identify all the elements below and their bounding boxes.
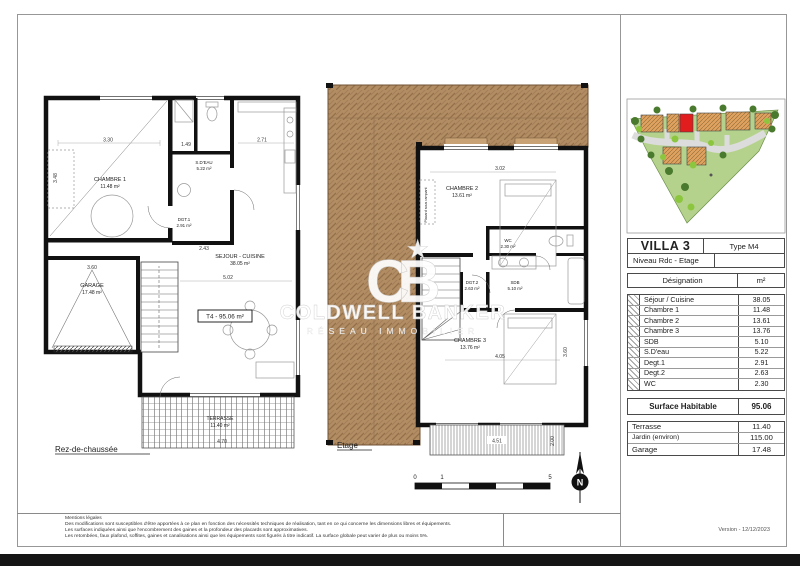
hatch-cell — [628, 306, 640, 316]
legal-notice: Mentions légales Des modifications sont … — [65, 516, 510, 540]
row-label: WC — [640, 380, 738, 388]
row-label: S.D'eau — [640, 348, 738, 356]
legal-line: Des modifications sont susceptibles d'êt… — [65, 522, 510, 528]
row-label: Chambre 3 — [640, 327, 738, 335]
row-value: 11.48 — [738, 306, 784, 316]
table-row: Chambre 2 13.61 — [628, 316, 784, 327]
hatch-cell — [628, 348, 640, 358]
table-row: Garage 17.48 — [628, 444, 784, 455]
table-total-box: Surface Habitable 95.06 — [627, 398, 785, 415]
table-row: Terrasse 11.40 — [628, 422, 784, 433]
table-rows-box: Séjour / Cuisine 38.05 Chambre 1 11.48 C… — [627, 294, 785, 391]
table-row: Séjour / Cuisine 38.05 — [628, 295, 784, 306]
row-value: 5.22 — [738, 348, 784, 358]
table-row: Chambre 1 11.48 — [628, 306, 784, 317]
row-value: 2.63 — [738, 369, 784, 379]
col-unit: m² — [737, 274, 784, 287]
hatch-cell — [628, 337, 640, 347]
row-label: Jardin (environ) — [628, 434, 738, 441]
table-row: Chambre 3 13.76 — [628, 327, 784, 338]
hatch-cell — [628, 295, 640, 305]
table-row: Degt.2 2.63 — [628, 369, 784, 380]
table-row: Jardin (environ) 115.00 — [628, 433, 784, 444]
row-label: Terrasse — [628, 422, 738, 431]
table-row: SDB 5.10 — [628, 337, 784, 348]
footer-divider — [17, 513, 621, 514]
level-label: Niveau Rdc - Etage — [628, 256, 714, 265]
level-empty-cell — [714, 254, 784, 267]
bottom-bar — [0, 554, 800, 566]
row-value: 38.05 — [738, 295, 784, 305]
row-value: 11.40 — [738, 422, 784, 432]
villa-type: Type M4 — [704, 239, 784, 253]
table-header-box: Désignation m² — [627, 273, 785, 288]
row-label: Degt.2 — [640, 369, 738, 377]
row-value: 115.00 — [738, 433, 784, 443]
row-label: Garage — [628, 445, 738, 454]
row-label: SDB — [640, 338, 738, 346]
table-row: WC 2.30 — [628, 379, 784, 390]
total-value: 95.06 — [738, 399, 784, 414]
row-value: 2.30 — [738, 379, 784, 390]
hatch-cell — [628, 379, 640, 390]
hatch-cell — [628, 358, 640, 368]
legal-line: Les retombées, faux plafond, soffites, g… — [65, 534, 510, 540]
villa-title: VILLA 3 — [628, 239, 704, 253]
hatch-cell — [628, 369, 640, 379]
row-label: Séjour / Cuisine — [640, 296, 738, 304]
hatch-cell — [628, 327, 640, 337]
row-label: Degt.1 — [640, 359, 738, 367]
panel-separator — [620, 14, 621, 546]
surface-table: VILLA 3 Type M4 Niveau Rdc - Etage Désig… — [627, 238, 785, 456]
row-label: Chambre 1 — [640, 306, 738, 314]
table-extras-box: Terrasse 11.40 Jardin (environ) 115.00 G… — [627, 421, 785, 456]
col-designation: Désignation — [628, 274, 737, 287]
row-value: 2.91 — [738, 358, 784, 368]
row-value: 13.61 — [738, 316, 784, 326]
table-row: S.D'eau 5.22 — [628, 348, 784, 359]
total-label: Surface Habitable — [628, 399, 738, 414]
row-value: 17.48 — [738, 444, 784, 455]
table-title-box: VILLA 3 Type M4 Niveau Rdc - Etage — [627, 238, 785, 268]
hatch-cell — [628, 316, 640, 326]
version-label: Version - 12/12/2023 — [630, 527, 778, 533]
table-row: Degt.1 2.91 — [628, 358, 784, 369]
row-value: 5.10 — [738, 337, 784, 347]
plan-sheet: CHAMBRE 1 11.48 m² S.D'EAU 5.22 m² DGT.1… — [0, 0, 800, 566]
row-label: Chambre 2 — [640, 317, 738, 325]
row-value: 13.76 — [738, 327, 784, 337]
